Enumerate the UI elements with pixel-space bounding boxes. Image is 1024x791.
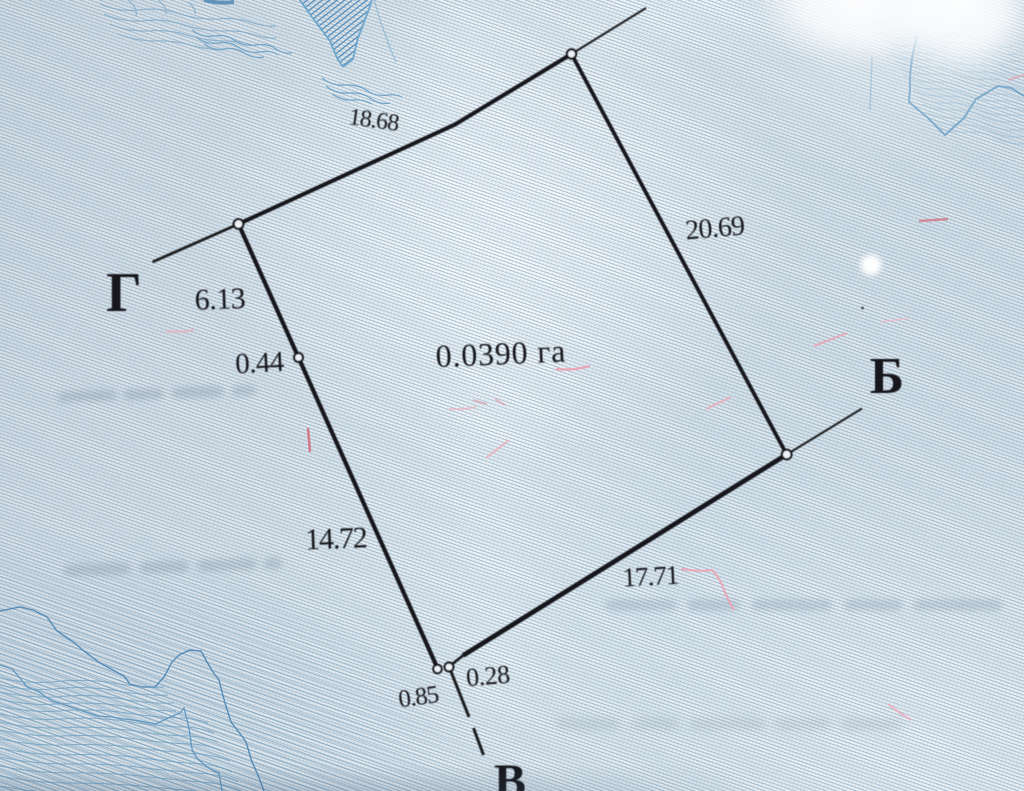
svg-text:0.0390 га: 0.0390 га	[435, 333, 567, 375]
svg-text:17.71: 17.71	[622, 560, 679, 593]
svg-text:0.85: 0.85	[397, 681, 441, 713]
svg-text:Б: Б	[870, 348, 904, 405]
svg-text:Г: Г	[106, 262, 142, 324]
svg-text:0.44: 0.44	[234, 346, 285, 381]
svg-text:14.72: 14.72	[305, 521, 368, 556]
svg-text:6.13: 6.13	[194, 282, 246, 317]
svg-text:0.28: 0.28	[465, 660, 511, 693]
svg-text:20.69: 20.69	[684, 210, 745, 246]
